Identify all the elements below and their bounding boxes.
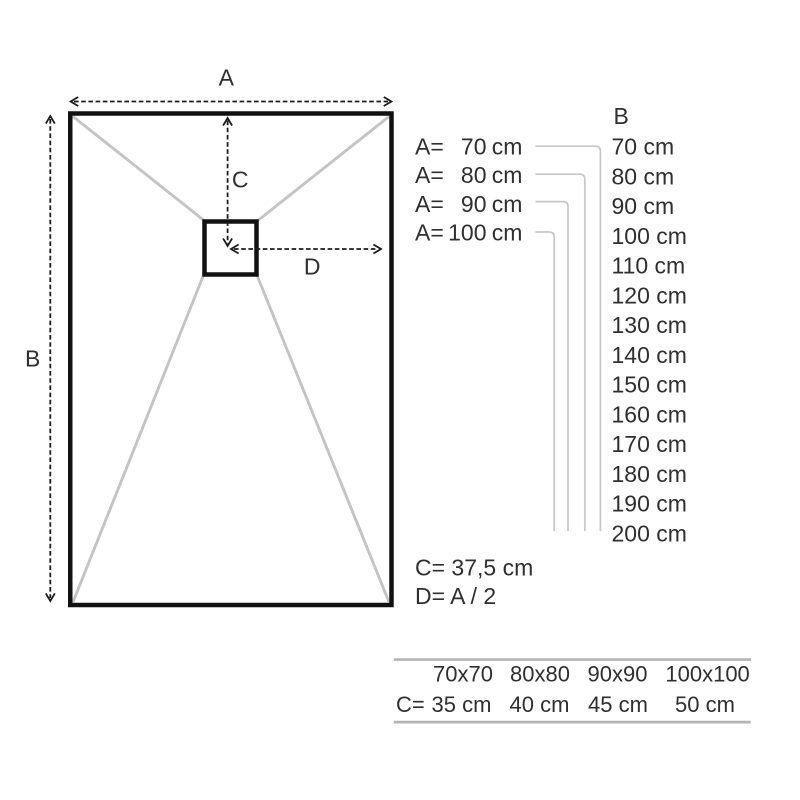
svg-text:90 cm: 90 cm [612, 193, 675, 219]
svg-text:cm: cm [492, 191, 523, 217]
svg-text:90x90: 90x90 [588, 662, 648, 687]
svg-text:35 cm: 35 cm [432, 692, 492, 717]
svg-text:150 cm: 150 cm [612, 372, 687, 398]
svg-text:100 cm: 100 cm [612, 223, 687, 249]
svg-text:A: A [219, 65, 235, 91]
svg-text:70: 70 [461, 134, 487, 160]
svg-text:80x80: 80x80 [510, 662, 570, 687]
svg-text:120 cm: 120 cm [612, 282, 687, 308]
svg-text:D: D [304, 254, 321, 280]
svg-text:170 cm: 170 cm [612, 431, 687, 457]
svg-text:A=: A= [415, 220, 444, 246]
svg-text:A=: A= [415, 162, 444, 188]
svg-text:130 cm: 130 cm [612, 312, 687, 338]
svg-text:A=: A= [415, 191, 444, 217]
svg-text:45 cm: 45 cm [588, 692, 648, 717]
svg-text:200 cm: 200 cm [612, 520, 687, 546]
svg-text:40 cm: 40 cm [510, 692, 570, 717]
svg-text:70x70: 70x70 [433, 662, 493, 687]
svg-text:180 cm: 180 cm [612, 461, 687, 487]
svg-text:160 cm: 160 cm [612, 401, 687, 427]
svg-text:A=: A= [415, 134, 444, 160]
svg-text:B: B [614, 103, 629, 129]
svg-text:C: C [232, 167, 249, 193]
svg-text:cm: cm [492, 162, 523, 188]
svg-text:90: 90 [461, 191, 487, 217]
svg-text:80 cm: 80 cm [612, 163, 675, 189]
svg-text:100: 100 [448, 220, 486, 246]
svg-text:cm: cm [492, 220, 523, 246]
svg-text:50 cm: 50 cm [675, 692, 735, 717]
svg-text:70 cm: 70 cm [612, 134, 675, 160]
svg-text:D= A / 2: D= A / 2 [415, 583, 496, 609]
svg-text:140 cm: 140 cm [612, 342, 687, 368]
svg-text:110 cm: 110 cm [612, 253, 686, 279]
svg-text:C=: C= [396, 692, 425, 717]
svg-text:cm: cm [492, 134, 523, 160]
svg-text:B: B [25, 345, 40, 371]
svg-text:C= 37,5 cm: C= 37,5 cm [415, 554, 533, 580]
svg-text:80: 80 [461, 162, 487, 188]
svg-text:190 cm: 190 cm [612, 491, 687, 517]
svg-text:100x100: 100x100 [665, 662, 749, 687]
